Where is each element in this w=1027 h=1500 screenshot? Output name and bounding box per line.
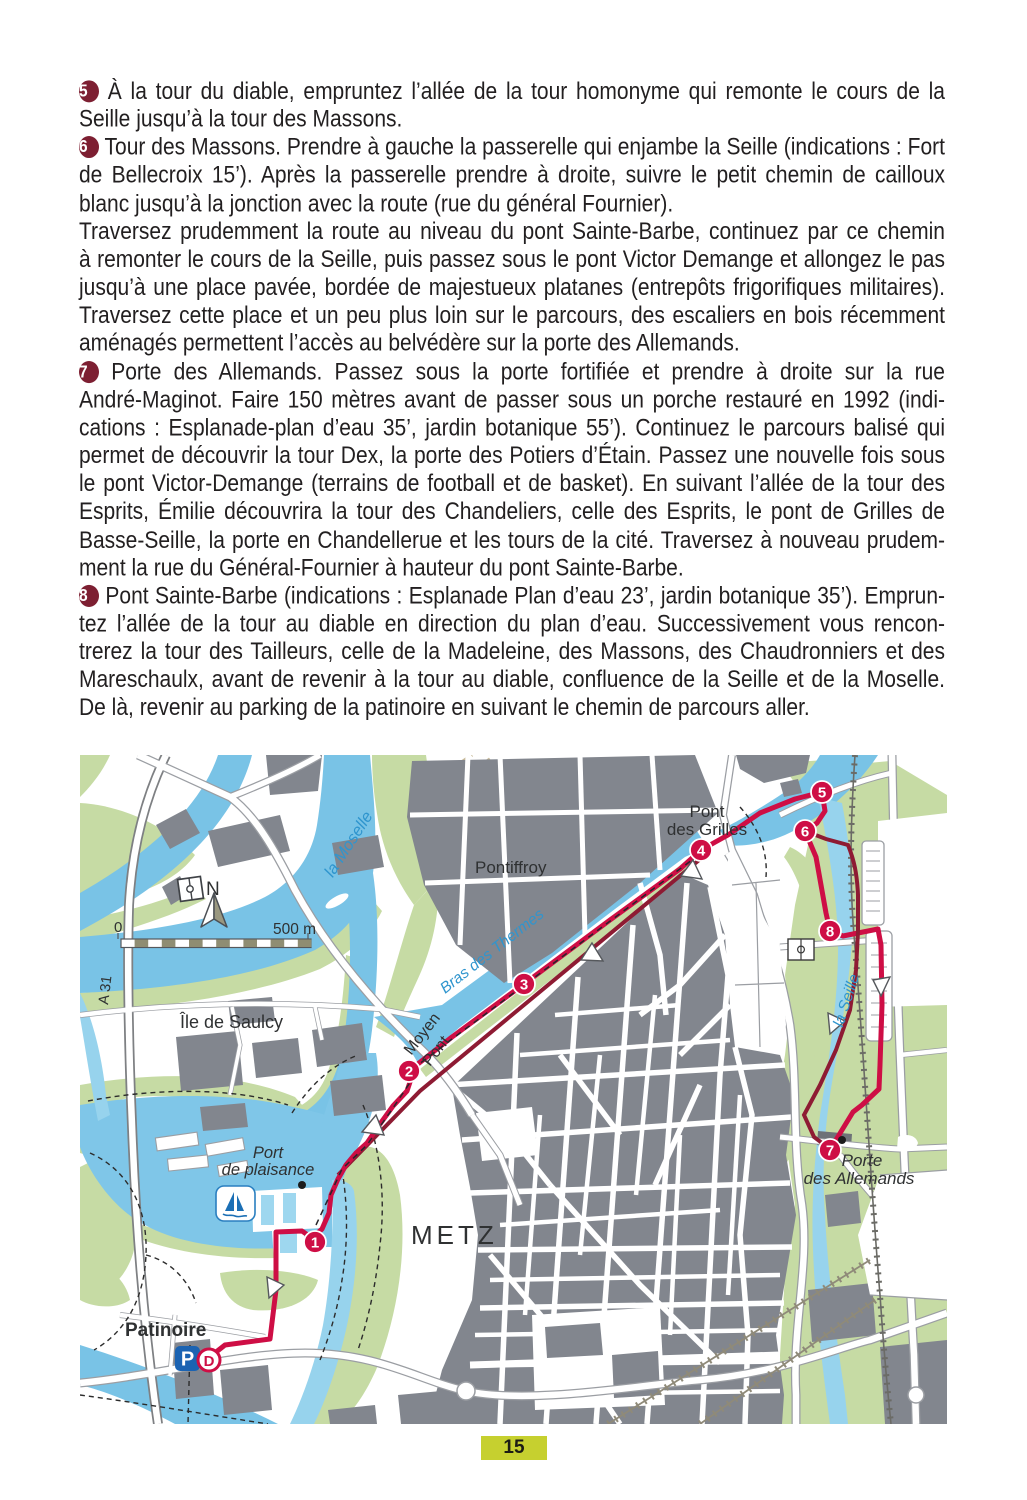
svg-text:Pont: Pont xyxy=(690,802,725,821)
svg-text:P: P xyxy=(181,1349,194,1371)
svg-text:500 m: 500 m xyxy=(273,921,316,938)
svg-text:3: 3 xyxy=(520,977,528,994)
svg-text:7: 7 xyxy=(826,1143,834,1160)
svg-text:Porte: Porte xyxy=(842,1151,883,1170)
svg-text:1: 1 xyxy=(311,1235,319,1252)
svg-text:5: 5 xyxy=(818,785,826,802)
svg-text:2: 2 xyxy=(405,1064,413,1081)
svg-text:des Grilles: des Grilles xyxy=(667,820,747,839)
svg-text:6: 6 xyxy=(801,824,809,841)
svg-text:D: D xyxy=(204,1353,215,1370)
svg-text:METZ: METZ xyxy=(411,1220,498,1250)
svg-text:Île de Saulcy: Île de Saulcy xyxy=(179,1012,283,1032)
svg-text:Patinoire: Patinoire xyxy=(125,1320,206,1341)
svg-text:des Allemands: des Allemands xyxy=(804,1169,915,1188)
svg-text:4: 4 xyxy=(697,843,706,860)
svg-text:de plaisance: de plaisance xyxy=(222,1161,315,1179)
svg-text:0: 0 xyxy=(114,919,122,936)
svg-text:Pontiffroy: Pontiffroy xyxy=(475,858,547,877)
svg-text:8: 8 xyxy=(826,924,834,941)
svg-text:Port: Port xyxy=(253,1144,285,1162)
